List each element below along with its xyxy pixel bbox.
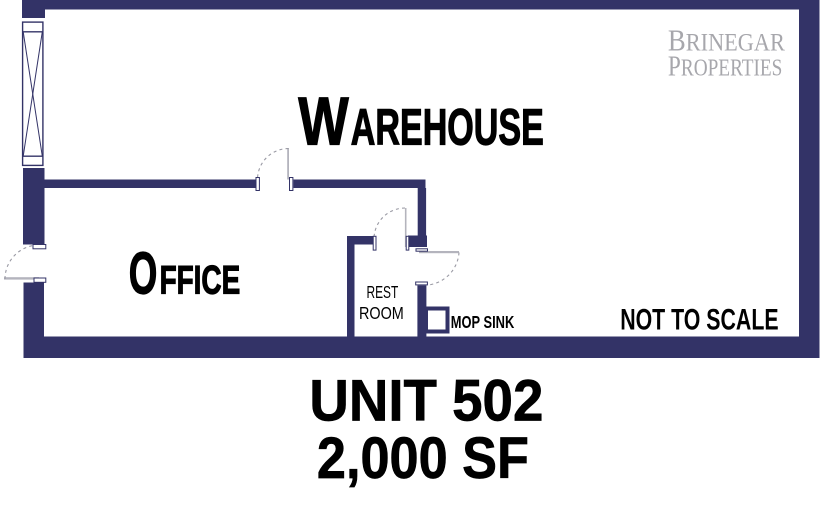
svg-text:ROOM: ROOM <box>359 303 404 323</box>
svg-text:AREHOUSE: AREHOUSE <box>351 99 544 156</box>
svg-text:BRINEGAR: BRINEGAR <box>668 22 786 57</box>
svg-text:2,000 SF: 2,000 SF <box>317 426 529 491</box>
svg-text:MOP SINK: MOP SINK <box>451 312 515 332</box>
svg-text:UNIT 502: UNIT 502 <box>309 369 543 434</box>
svg-text:W: W <box>298 85 349 160</box>
svg-text:NOT TO SCALE: NOT TO SCALE <box>620 305 778 337</box>
svg-text:PROPERTIES: PROPERTIES <box>668 50 783 82</box>
svg-text:O: O <box>129 240 158 307</box>
svg-text:REST: REST <box>367 282 399 302</box>
svg-text:FFICE: FFICE <box>160 258 241 303</box>
